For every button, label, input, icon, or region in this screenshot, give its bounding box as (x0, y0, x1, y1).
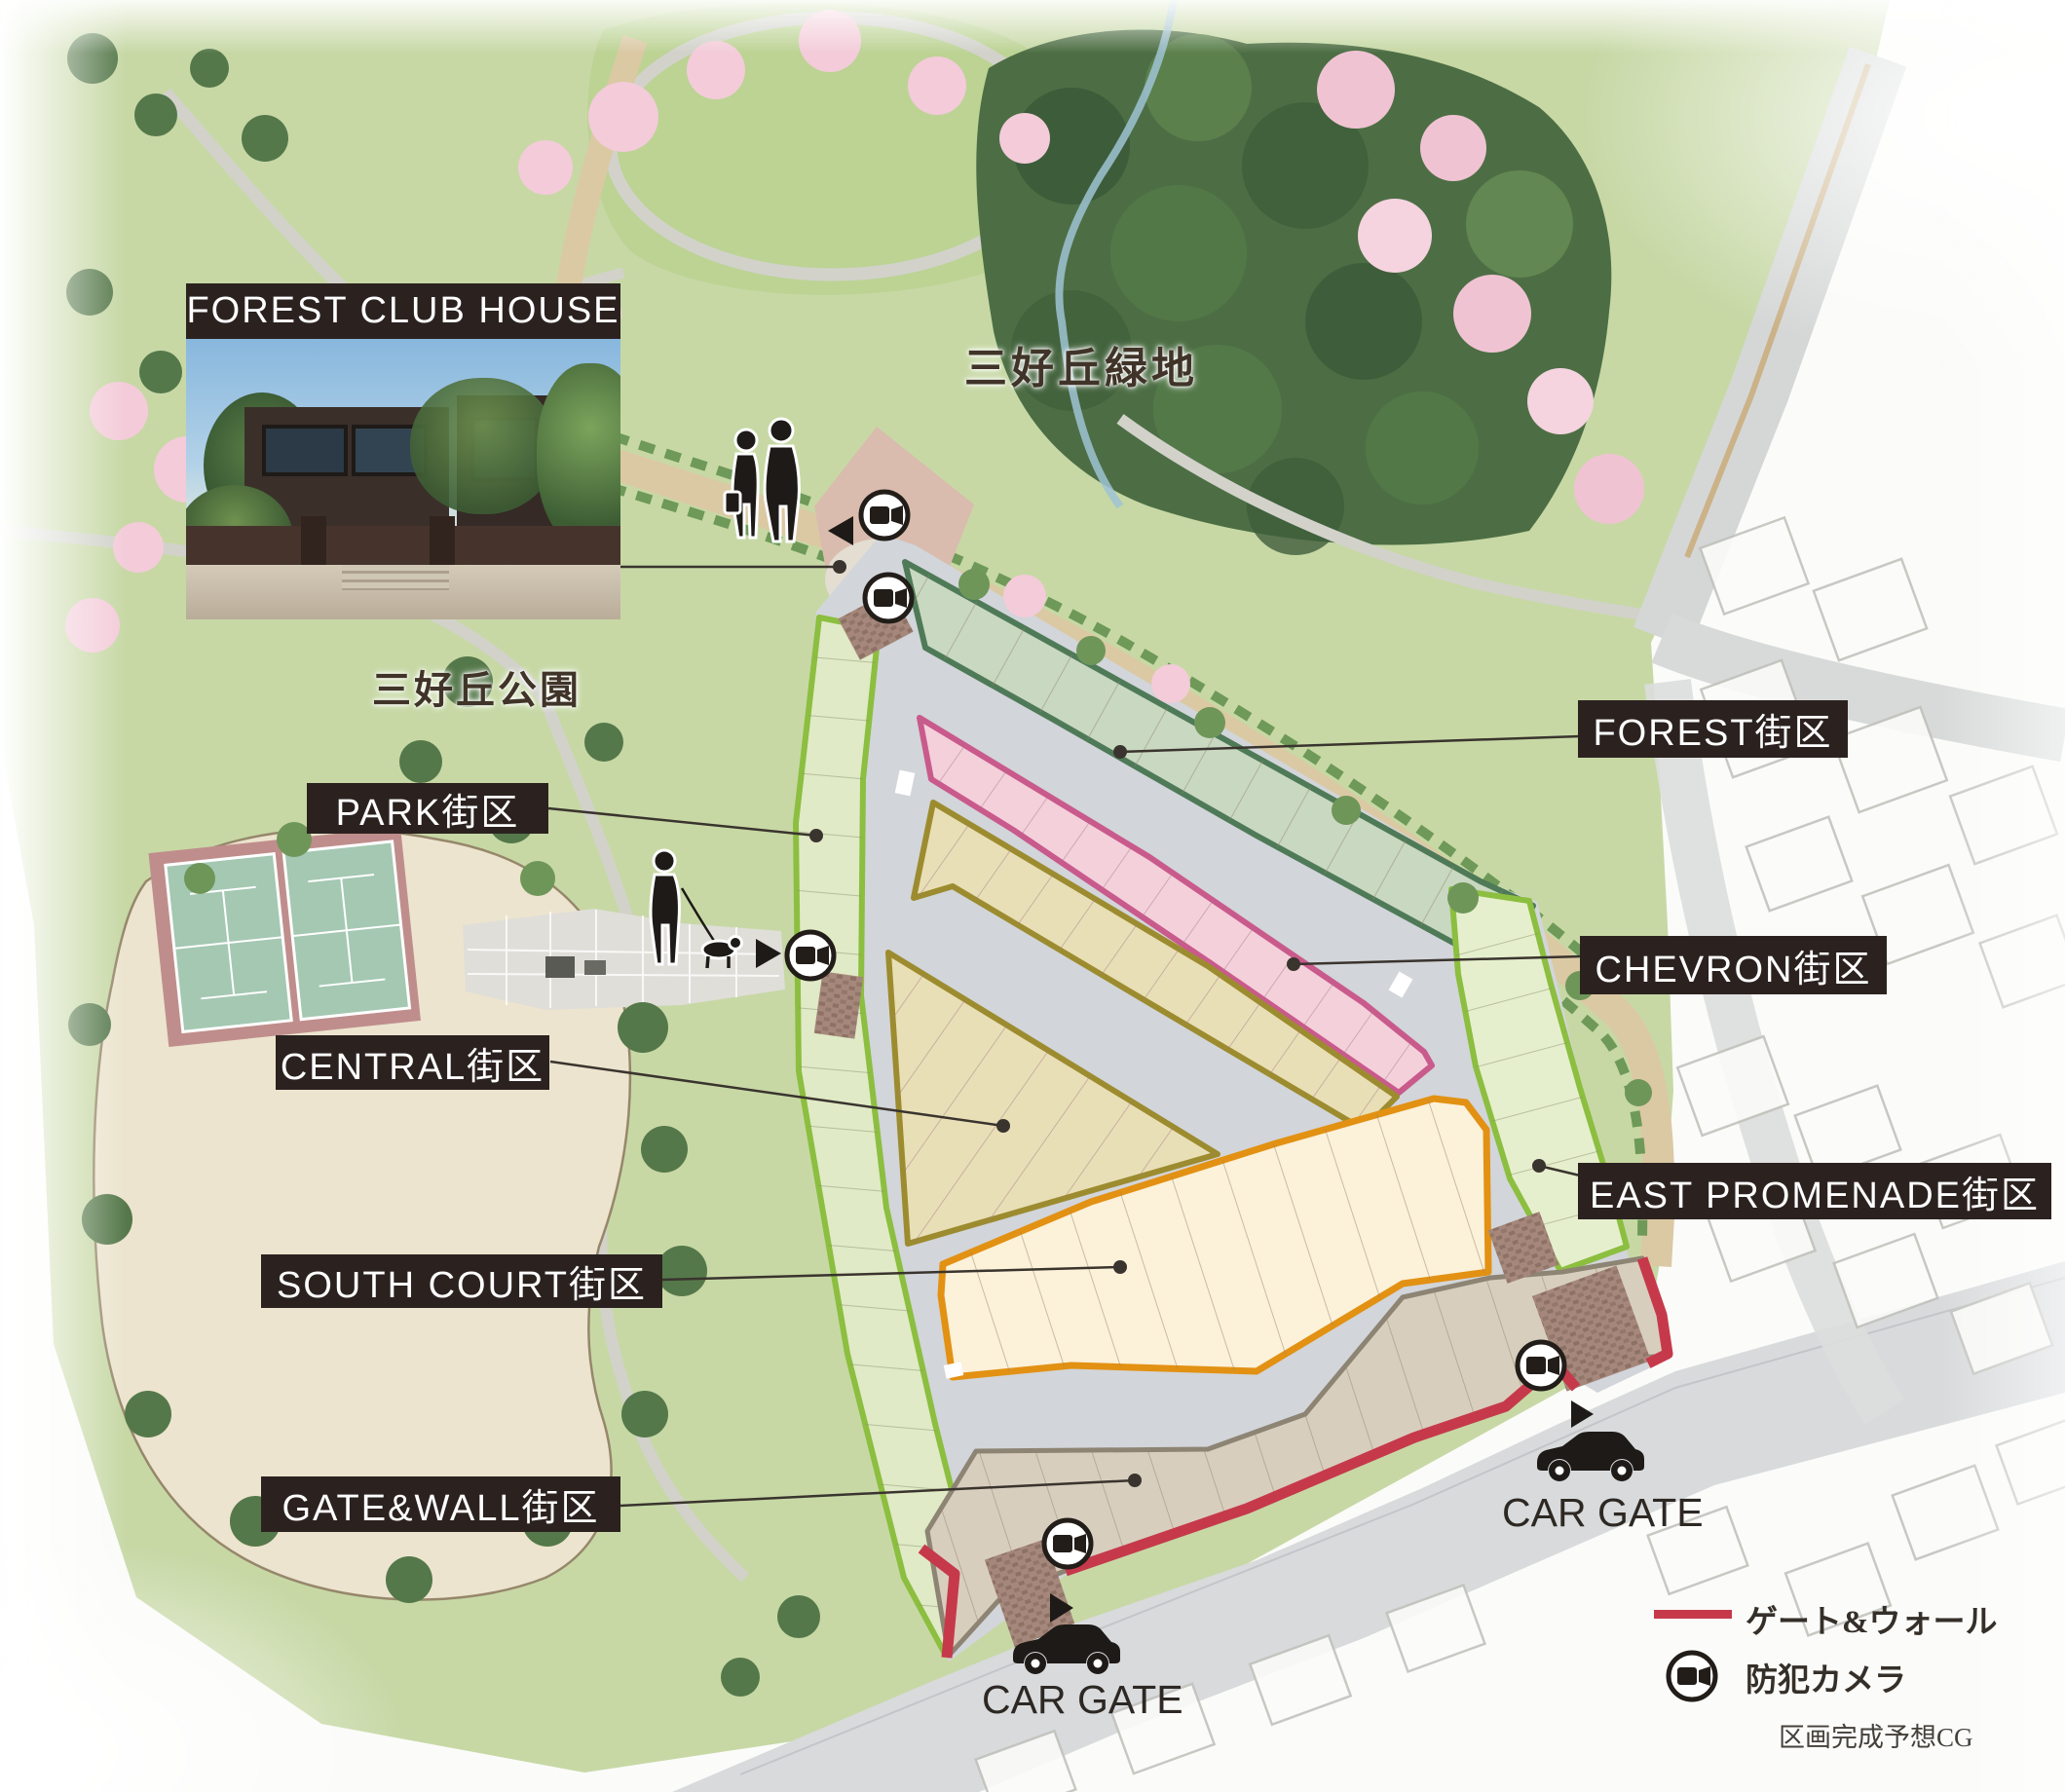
label-chevron-block: CHEVRON街区 (1580, 936, 1887, 994)
park-name: 三好丘公園 (372, 658, 582, 715)
security-camera-icon (1044, 1520, 1091, 1567)
site-plan-map: FOREST CLUB HOUSE 三好丘緑地 三好丘公園 PARK街区 CEN… (0, 0, 2065, 1792)
photo-tree (537, 363, 620, 548)
photo-gate-pillar (301, 516, 326, 571)
legend-camera-icon (1666, 1650, 1718, 1702)
legend-gate-wall-line (1654, 1610, 1732, 1619)
label-central-block: CENTRAL街区 (276, 1035, 549, 1090)
legend-camera-label: 防犯カメラ (1746, 1654, 1906, 1700)
security-camera-icon (787, 932, 834, 979)
clubhouse-title: FOREST CLUB HOUSE (186, 290, 619, 332)
car-gate-south-label: CAR GATE (982, 1677, 1155, 1723)
legend-gate-wall-label: ゲート&ウォール (1746, 1595, 1998, 1642)
cg-note: 区画完成予想CG (1779, 1716, 1973, 1754)
security-camera-icon (1518, 1342, 1564, 1389)
security-camera-icon (865, 575, 912, 621)
photo-tree (410, 378, 556, 514)
label-east-promenade-block: EAST PROMENADE街区 (1578, 1163, 2051, 1219)
clubhouse-photo (186, 339, 620, 619)
greenbelt-name: 三好丘緑地 (964, 333, 1198, 395)
photo-window (262, 425, 348, 476)
tennis-courts (148, 827, 420, 1047)
label-forest-block: FOREST街区 (1578, 700, 1848, 758)
label-park-block: PARK街区 (307, 783, 548, 834)
photo-steps (342, 565, 449, 590)
car-gate-east-label: CAR GATE (1502, 1490, 1675, 1536)
label-gate-wall-block: GATE&WALL街区 (261, 1476, 620, 1532)
label-south-court-block: SOUTH COURT街区 (261, 1254, 662, 1308)
photo-gate-wall (186, 526, 620, 567)
clubhouse-label: FOREST CLUB HOUSE (186, 283, 620, 339)
photo-gate-pillar (430, 516, 455, 571)
security-camera-icon (861, 492, 908, 539)
